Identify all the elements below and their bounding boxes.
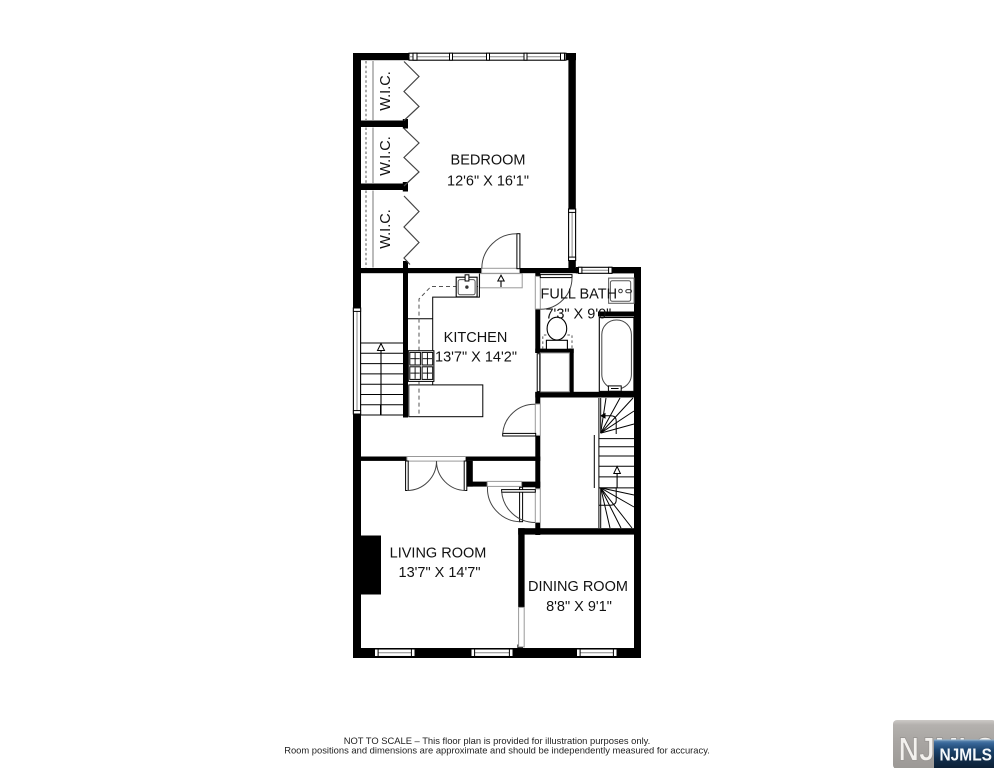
svg-text:DINING ROOM: DINING ROOM [528, 579, 628, 595]
svg-text:12'6" X 16'1": 12'6" X 16'1" [447, 174, 529, 190]
svg-text:Room positions and dimensions: Room positions and dimensions are approx… [284, 745, 710, 756]
svg-text:W.I.C.: W.I.C. [378, 136, 394, 175]
svg-text:BEDROOM: BEDROOM [451, 153, 526, 169]
svg-text:7'3" X 9'0": 7'3" X 9'0" [545, 307, 611, 323]
svg-text:W.I.C.: W.I.C. [378, 71, 394, 110]
svg-text:NJMLS: NJMLS [940, 745, 993, 765]
svg-text:LIVING ROOM: LIVING ROOM [390, 546, 487, 562]
svg-text:8'8" X 9'1": 8'8" X 9'1" [546, 599, 612, 615]
svg-text:W.I.C.: W.I.C. [378, 209, 394, 248]
svg-text:KITCHEN: KITCHEN [444, 330, 508, 346]
svg-text:13'7" X 14'2": 13'7" X 14'2" [435, 350, 517, 366]
svg-text:13'7" X 14'7": 13'7" X 14'7" [399, 565, 481, 581]
svg-text:FULL BATH: FULL BATH [541, 287, 618, 303]
